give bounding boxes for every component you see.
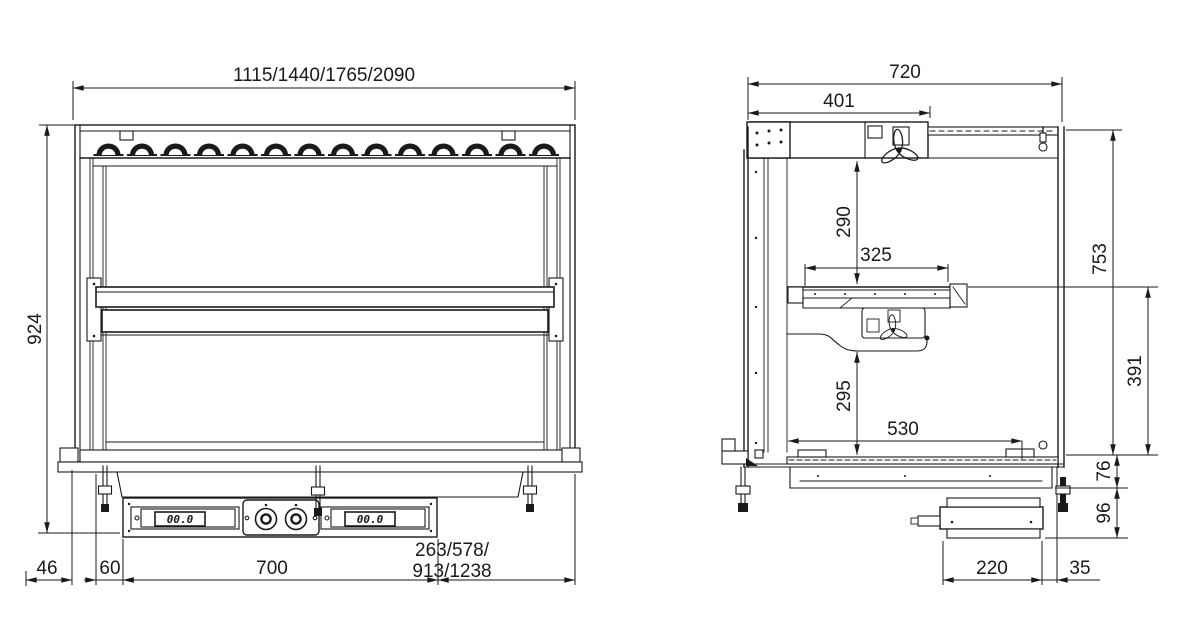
dim-box-height: 96	[1094, 502, 1115, 523]
drain-hole	[1039, 441, 1047, 449]
mounting-plate	[747, 122, 790, 158]
front-structure	[58, 125, 582, 512]
side-shelf	[788, 284, 967, 308]
base-band	[80, 450, 570, 462]
threaded-rod-right	[524, 466, 537, 512]
dim-shelf-depth: 325	[860, 245, 892, 266]
dim-offset-inner: 60	[99, 558, 120, 579]
front-view: 00.0 00.0	[25, 65, 582, 586]
threaded-rod-left	[99, 466, 112, 512]
threaded-rod-side-right	[1056, 477, 1070, 512]
dim-offset-left: 46	[36, 558, 57, 579]
lcd-value-left: 00.0	[167, 513, 194, 526]
dim-total-depth: 720	[889, 62, 921, 83]
side-structure	[722, 122, 1070, 583]
knob-module	[243, 500, 319, 535]
top-clip-left	[120, 131, 133, 140]
top-clip-right	[502, 131, 515, 140]
dim-front-width: 1115/1440/1765/2090	[233, 65, 415, 86]
dim-panel-width: 700	[256, 558, 288, 579]
dim-box-offset: 35	[1069, 558, 1090, 579]
dim-canopy-depth: 401	[823, 91, 855, 112]
bottom-tray	[790, 467, 1052, 488]
dim-total-height: 753	[1090, 243, 1111, 275]
dim-well-depth: 530	[887, 419, 919, 440]
lcd-value-right: 00.0	[357, 513, 384, 526]
temperature-display-left: 00.0	[131, 507, 239, 529]
dim-front-height: 924	[25, 313, 46, 345]
technical-drawing-page: 00.0 00.0	[0, 0, 1203, 644]
dim-box-depth: 220	[976, 558, 1008, 579]
middle-shelf	[96, 287, 554, 335]
connector-stub	[918, 516, 940, 526]
dim-lower-height: 295	[834, 380, 855, 412]
under-shelf-fan	[862, 308, 930, 341]
dim-well-height: 391	[1125, 355, 1146, 387]
temperature-display-right: 00.0	[321, 507, 429, 529]
side-view: 720 401 290 325 753 391 295	[722, 62, 1158, 585]
dim-upper-height: 290	[834, 206, 855, 238]
threaded-rod-side-left	[736, 467, 750, 512]
hanging-box	[911, 498, 1043, 538]
dim-flange-height: 76	[1094, 460, 1115, 481]
dim-right-options-2: 913/1238	[412, 561, 491, 582]
technical-drawing: 00.0 00.0	[0, 0, 1203, 644]
hook	[1040, 133, 1046, 142]
dim-right-options-1: 263/578/	[415, 540, 490, 561]
